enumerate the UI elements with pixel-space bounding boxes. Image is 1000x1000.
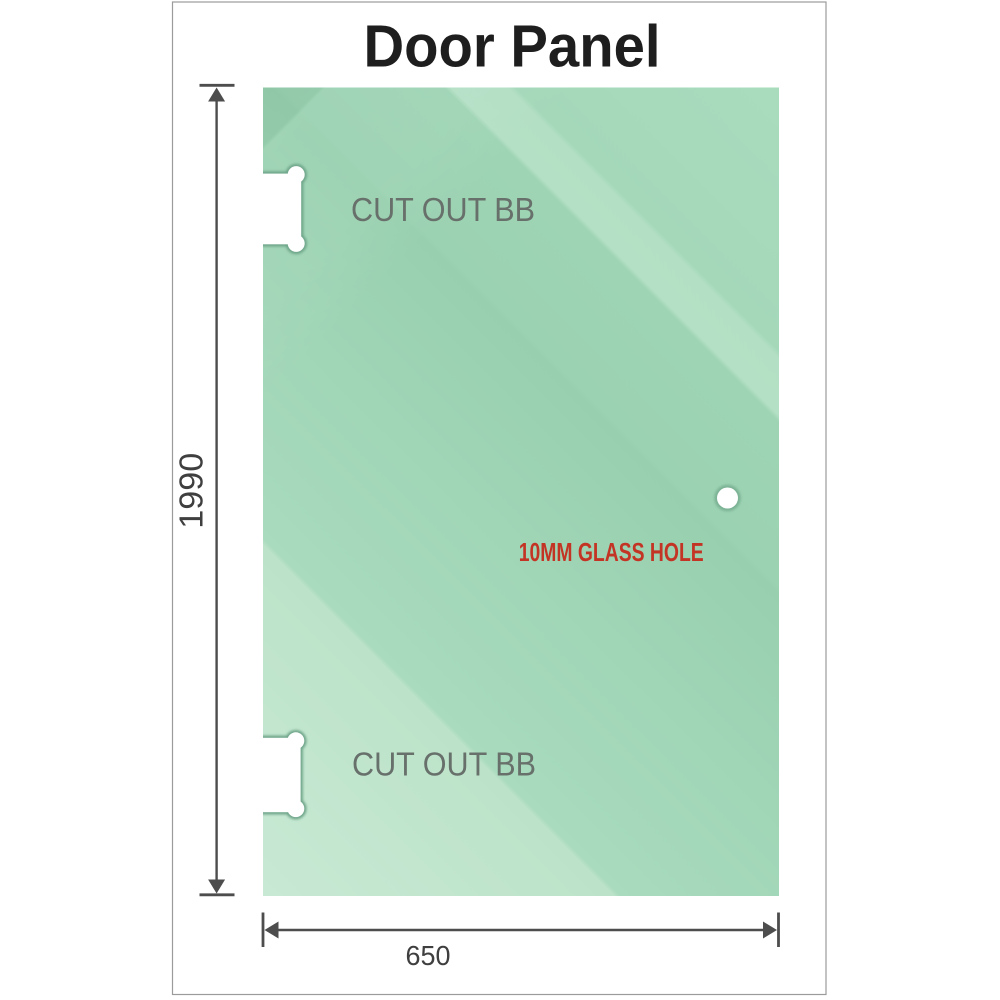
- svg-text:Door Panel: Door Panel: [364, 14, 661, 80]
- svg-text:CUT OUT BB: CUT OUT BB: [351, 192, 535, 229]
- svg-text:1990: 1990: [174, 453, 211, 529]
- svg-text:10MM GLASS HOLE: 10MM GLASS HOLE: [519, 537, 704, 567]
- svg-text:650: 650: [406, 940, 451, 971]
- svg-text:CUT OUT BB: CUT OUT BB: [352, 746, 536, 783]
